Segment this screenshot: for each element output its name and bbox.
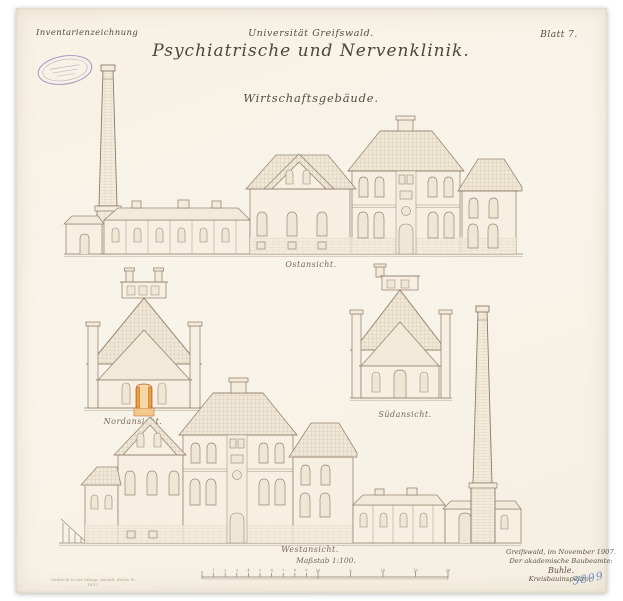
scale-tick-5: 5 — [259, 569, 262, 573]
scale-tick-8: 8 — [294, 569, 297, 573]
scale-bar: 1 2 3 4 5 6 7 8 9 10 5 10 15 20 — [200, 567, 452, 585]
signature-name: Buhle. — [494, 566, 623, 575]
west-main-building — [81, 378, 357, 543]
scale-tick-9: 9 — [305, 569, 308, 573]
west-view-label: Westansicht. — [260, 545, 360, 554]
scale-tick-2: 2 — [224, 569, 226, 573]
east-annex — [104, 200, 250, 254]
scale-major-15: 15 — [413, 569, 418, 573]
west-chimney — [469, 306, 497, 543]
east-view-label: Ostansicht. — [261, 260, 361, 269]
scale-tick-6: 6 — [270, 569, 273, 573]
south-roof-monitor — [380, 276, 420, 290]
east-annex-far-left — [64, 216, 104, 254]
scanned-drawing-page: Inventarienzeichnung Universität Greifsw… — [0, 0, 623, 601]
scale-major-5: 5 — [349, 569, 352, 573]
north-ridge-chimneys — [125, 268, 164, 282]
scale-tick-7: 7 — [282, 569, 285, 573]
west-annex — [353, 488, 445, 543]
scale-major-10: 10 — [381, 569, 386, 573]
signature-role: Der akademische Baubeamte: — [494, 557, 623, 566]
signature-place-date: Greifswald, im November 1907. — [494, 548, 623, 557]
scale-tick-3: 3 — [236, 569, 239, 573]
corner-note: Inventarienzeichnung — [36, 28, 138, 38]
scale-label: Maßstab 1:100. — [266, 556, 386, 565]
west-stair-railing — [61, 519, 85, 543]
title-institution: Universität Greifswald. — [211, 28, 411, 39]
north-roof-monitor — [120, 282, 168, 298]
south-ridge-chimney — [374, 264, 386, 277]
scale-tick-1: 1 — [212, 569, 214, 573]
scale-major-20: 20 — [446, 569, 451, 573]
scale-tick-4: 4 — [247, 569, 250, 573]
east-main-building — [246, 116, 522, 254]
scale-tick-10: 10 — [316, 569, 321, 573]
imprint-line-2: 1907. — [34, 582, 152, 587]
drawing-sheet: Inventarienzeichnung Universität Greifsw… — [16, 8, 607, 593]
printer-imprint: Gedruckt in der lithogr. Anstalt, Berlin… — [34, 577, 152, 587]
sheet-number: Blatt 7. — [524, 30, 594, 40]
east-elevation-drawing — [60, 58, 526, 264]
west-elevation-drawing — [55, 303, 525, 553]
